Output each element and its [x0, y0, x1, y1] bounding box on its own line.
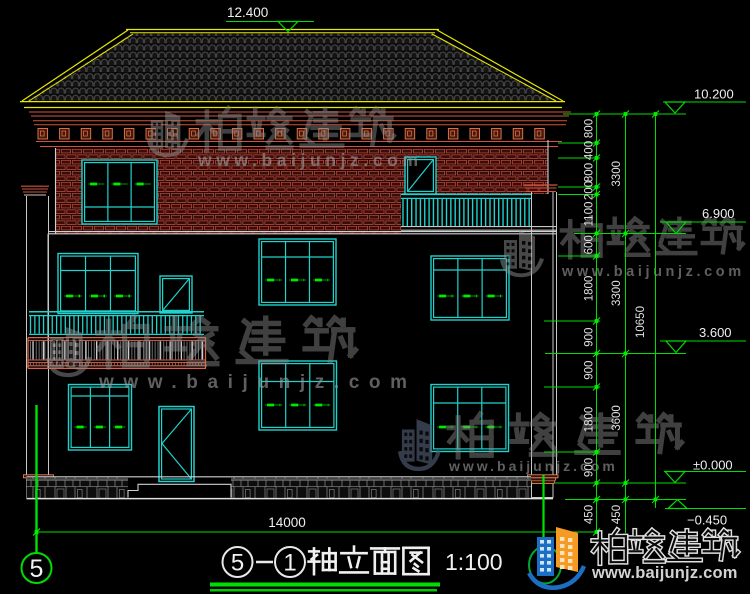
svg-text:800: 800: [584, 119, 596, 138]
svg-text:3300: 3300: [611, 161, 623, 187]
svg-text:450: 450: [584, 505, 596, 524]
svg-text:5: 5: [30, 555, 44, 583]
svg-text:1:100: 1:100: [445, 549, 503, 575]
svg-text:5: 5: [231, 550, 244, 577]
svg-text:1100: 1100: [584, 202, 596, 227]
svg-text:400: 400: [584, 141, 596, 160]
svg-text:900: 900: [584, 361, 596, 380]
svg-text:14000: 14000: [268, 515, 306, 530]
svg-text:3300: 3300: [611, 280, 623, 306]
svg-text:900: 900: [584, 458, 596, 477]
svg-text:www.baijunjz.com: www.baijunjz.com: [197, 150, 423, 170]
svg-text:1800: 1800: [584, 276, 596, 302]
svg-text:12.400: 12.400: [227, 5, 268, 20]
svg-text:6.900: 6.900: [702, 206, 735, 221]
svg-text:800: 800: [584, 163, 596, 182]
svg-text:10.200: 10.200: [694, 87, 734, 102]
svg-text:450: 450: [611, 505, 623, 524]
svg-text:600: 600: [584, 235, 596, 254]
svg-text:1800: 1800: [584, 407, 596, 433]
svg-text:200: 200: [584, 181, 596, 200]
svg-text:10650: 10650: [635, 306, 647, 338]
svg-text:www.baijunjz.com: www.baijunjz.com: [591, 564, 738, 582]
svg-text:1: 1: [283, 550, 296, 577]
svg-text:www.baijunjz.com: www.baijunjz.com: [98, 372, 417, 393]
svg-text:−0.450: −0.450: [687, 513, 727, 528]
svg-text:±0.000: ±0.000: [693, 458, 733, 473]
svg-text:900: 900: [584, 328, 596, 347]
svg-text:3600: 3600: [611, 405, 623, 431]
svg-text:3.600: 3.600: [699, 325, 732, 340]
